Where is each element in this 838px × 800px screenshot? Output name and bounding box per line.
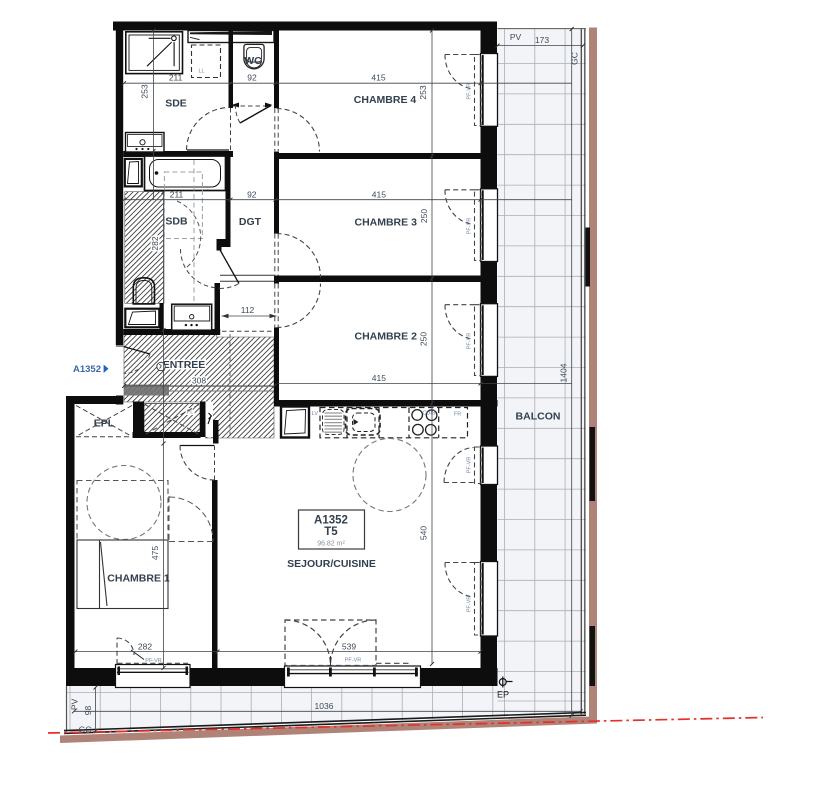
svg-text:CHAMBRE 3: CHAMBRE 3 (354, 217, 417, 229)
svg-text:CHAMBRE 4: CHAMBRE 4 (354, 94, 417, 106)
svg-text:LL: LL (198, 69, 204, 75)
svg-text:LV: LV (312, 411, 319, 417)
svg-text:250: 250 (419, 332, 429, 346)
svg-text:SDB: SDB (165, 216, 188, 228)
svg-text:92: 92 (247, 189, 257, 199)
svg-text:253: 253 (418, 85, 428, 99)
svg-text:308: 308 (192, 376, 206, 386)
svg-text:WC: WC (244, 55, 262, 67)
svg-text:539: 539 (342, 642, 356, 652)
svg-text:PF-VR: PF-VR (467, 333, 473, 350)
svg-text:EPL: EPL (94, 418, 115, 430)
svg-text:EP: EP (497, 690, 509, 700)
svg-text:415: 415 (372, 189, 386, 199)
svg-text:PF-VR: PF-VR (467, 457, 473, 474)
svg-text:DGT: DGT (239, 216, 262, 228)
svg-text:475: 475 (150, 546, 160, 560)
svg-text:415: 415 (371, 73, 385, 83)
svg-text:GC: GC (570, 52, 580, 65)
svg-text:173: 173 (535, 35, 549, 45)
svg-text:PF-VR: PF-VR (145, 658, 162, 664)
svg-text:96.82 m²: 96.82 m² (317, 541, 345, 548)
svg-text:PV: PV (510, 32, 522, 42)
svg-text:PF-VR: PF-VR (467, 218, 473, 235)
svg-text:PF-VR: PF-VR (345, 658, 362, 664)
svg-text:250: 250 (419, 209, 429, 223)
svg-text:ENTREE: ENTREE (163, 359, 206, 371)
svg-text:CUIS: CUIS (422, 411, 435, 417)
svg-text:112: 112 (241, 305, 255, 315)
svg-text:CHAMBRE 1: CHAMBRE 1 (107, 573, 170, 585)
svg-text:BALCON: BALCON (516, 411, 561, 423)
svg-text:PV: PV (70, 698, 80, 710)
svg-text:92: 92 (247, 73, 257, 83)
svg-text:T5: T5 (324, 526, 338, 538)
svg-text:A1352: A1352 (73, 364, 101, 375)
svg-text:PF-VR: PF-VR (467, 83, 473, 100)
svg-text:GC: GC (79, 725, 92, 735)
svg-text:A1352: A1352 (314, 515, 348, 527)
svg-text:1036: 1036 (315, 701, 334, 711)
svg-text:FR: FR (454, 412, 461, 418)
svg-text:415: 415 (372, 373, 386, 383)
svg-text:282: 282 (150, 236, 160, 250)
svg-text:CHAMBRE 2: CHAMBRE 2 (354, 331, 417, 343)
svg-text:PF-VR: PF-VR (467, 596, 473, 613)
svg-text:253: 253 (140, 84, 150, 98)
svg-text:SDE: SDE (165, 98, 187, 110)
svg-text:98: 98 (83, 706, 93, 716)
svg-text:540: 540 (419, 526, 429, 540)
svg-text:SEJOUR/CUISINE: SEJOUR/CUISINE (287, 558, 376, 570)
svg-text:1404: 1404 (559, 363, 569, 382)
svg-text:282: 282 (138, 642, 152, 652)
